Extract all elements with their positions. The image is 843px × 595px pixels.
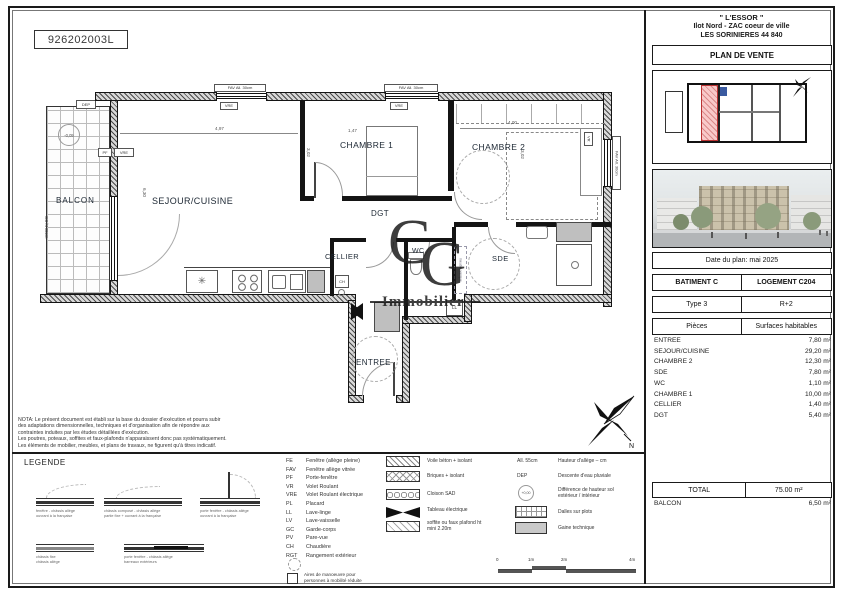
wall-segment [464,294,612,303]
symbol-label: extérieur / intérieur [558,493,600,499]
level-symbol: +0,00 [518,485,534,501]
dim-label: 3,02 [520,150,525,159]
material-swatch-soffit [386,521,420,532]
material-label: Voile béton + isolant [427,458,472,464]
washbasin [526,226,548,239]
key-plan-building [687,83,807,143]
sink [268,270,306,293]
nota-line: Les éléments de mobilier, meubles, et pl… [18,443,227,449]
project-address-1: Ilot Nord - ZAC coeur de ville [650,23,833,30]
material-swatch-concrete [386,456,420,467]
wall-segment [266,92,386,101]
total-row: TOTAL 75.00 m² [652,482,832,498]
plan-date: Date du plan: mai 2025 [652,252,832,269]
utility-duct [556,222,592,242]
legend-glyph: porte fenêtre - châssis allègebarreaux e… [124,544,214,570]
wall-segment [438,92,612,101]
watermark-subtitle: Immobilier [382,294,465,311]
vre-label: VRE [114,148,134,157]
table-row: DGT5,40 m² [654,412,831,419]
pmr-legend-circle [288,558,301,571]
watermark-logo: C G Immobilier [370,210,485,315]
material-swatch-brick [386,471,420,482]
window-symbol [386,93,438,99]
wall-segment [40,294,356,303]
table-row: ENTREE7,80 m² [654,337,831,344]
north-arrow-icon: N [584,394,640,450]
shower-tray [556,244,592,286]
reference-number: 926202003L [34,30,128,49]
material-swatch-sad [386,489,420,500]
building-render [652,169,832,248]
partition [300,196,314,201]
key-plan-north-icon [791,76,813,98]
legend-glyph: fenêtre - châssis allègeouvrant à la fra… [36,484,98,520]
wall-segment [603,92,612,140]
legend-divider [12,452,644,454]
wall-segment [348,395,364,403]
level-marker: -0,05 [58,124,80,146]
dim-label: 4,97 [215,126,224,131]
table-row: CELLIER1,40 m² [654,401,831,408]
partition [448,101,454,191]
dim-label: 6,30 [142,188,147,197]
room-label-balcon: BALCON [56,196,95,205]
guardrail-note: GC ht 80cm [44,216,49,238]
boiler-label: CH [335,275,349,288]
key-plan [652,70,832,164]
dim-label: 1,47 [348,128,357,133]
table-row: SEJOUR/CUISINE29,20 m² [654,348,831,355]
legend-glyph: châssis composé - châssis allègepartie f… [104,484,194,520]
col-pieces: Pièces [653,319,742,334]
pf-label: PF [98,148,112,157]
symbol-label: Hauteur d'allège – cm [558,458,606,464]
material-label: Briques + isolant [427,473,464,479]
building-row: BATIMENT C LOGEMENT C204 [652,274,832,291]
doc-title: PLAN DE VENTE [652,45,832,65]
dim-label: 4,00 [508,120,517,125]
room-label-entree: ENTREE [356,358,391,367]
kitchen-unit: ✳ [186,270,218,293]
symbol-label: Dalles sur plots [558,509,592,515]
partition [330,238,366,242]
pmr-legend-square [287,573,298,584]
pmr-caption: Aires de manoeuvre pour [304,572,356,577]
balcony-label: BALCON [654,500,681,507]
window-symbol [604,140,611,186]
render-tree [673,214,689,230]
boiler-symbol [338,289,345,296]
balcony-value: 6,50 m² [809,500,831,507]
legend-title: LEGENDE [24,458,66,467]
project-name: " L'ESSOR " [650,13,833,22]
dim-label: 3,02 [306,148,311,157]
bed [366,126,418,196]
dep-label: DEP [76,100,96,109]
room-label-sejour: SEJOUR/CUISINE [152,196,233,206]
watermark-letter-g: G [420,232,466,296]
utility-duct [307,270,325,293]
render-road [653,233,832,248]
hob [232,270,262,293]
type-row: Type 3 R+2 [652,296,832,313]
pmr-caption: personnes à mobilité réduite [304,578,362,583]
render-tree [755,203,781,229]
key-plan-unit-highlight [701,85,718,141]
wall-segment [402,316,472,324]
legend-glyph: porte fenêtre - châssis allègeouvrant à … [200,472,270,520]
table-row: WC1,10 m² [654,380,831,387]
electrical-panel [351,303,363,320]
fav-label: FAV All. 30cm [214,84,266,92]
duct-swatch [515,522,547,534]
watermark-line [370,301,480,303]
type-value: Type 3 [653,297,742,312]
batiment-value: BATIMENT C [653,275,742,290]
material-label: mini 2.20m [427,526,451,532]
partition [300,101,305,200]
french-door-symbol [111,197,118,280]
table-row: SDE7,80 m² [654,369,831,376]
partition [330,238,334,296]
wardrobe [456,104,604,124]
total-value: 75.00 m² [746,483,831,497]
fav-label: FAV All. 30cm [384,84,438,92]
nota-line: Les poutres, poteaux, soffites et faux-p… [18,436,227,442]
pmr-circle [456,150,510,204]
room-label-chambre1: CHAMBRE 1 [340,140,393,150]
vr-label: VR [584,132,593,146]
material-label: Tableau électrique [427,507,468,513]
dim-line [460,128,598,129]
project-address-2: LES SORINIERES 44 840 [650,32,833,39]
render-tree [803,212,821,230]
vre-label: VRE [220,102,238,110]
wall-segment [603,186,612,307]
nota-text: NOTA: Le présent document est établi sur… [18,417,227,449]
symbol-code: DEP [517,473,527,479]
surface-table-header: Pièces Surfaces habitables [652,318,832,335]
material-swatch-electrical [386,505,420,516]
dim-line [120,133,298,134]
material-label: Cloison SAD [427,491,455,497]
room-label-sde: SDE [492,254,509,263]
room-label-cellier: CELLIER [325,252,359,261]
balcony-row: BALCON 6,50 m² [654,500,831,507]
table-row: CHAMBRE 110,00 m² [654,391,831,398]
pedestal-slab-swatch [515,506,547,518]
nota-line: des adaptations dimensionnelles, techniq… [18,423,227,429]
fav-label-vertical: FAV All. 30cm [612,136,621,190]
symbol-code: All. 55cm [517,458,538,464]
render-tree [691,206,713,228]
vre-label: VRE [390,102,408,110]
bed-fold-line [366,176,418,177]
panel-divider [644,10,646,584]
key-plan-annex [665,91,683,133]
floor-value: R+2 [742,297,832,312]
room-label-chambre2: CHAMBRE 2 [472,142,525,152]
total-label: TOTAL [653,483,746,497]
symbol-label: Descente d'eau pluviale [558,473,611,479]
table-row: CHAMBRE 212,30 m² [654,358,831,365]
symbol-label: Gaine technique [558,525,594,531]
logement-value: LOGEMENT C204 [742,275,832,290]
legend-glyph: châssis fixechâssis allège [36,544,98,570]
col-surfaces: Surfaces habitables [742,319,832,334]
window-symbol [217,93,266,99]
partition [342,196,452,201]
counter-line [184,267,330,268]
north-letter: N [629,443,634,450]
plan-sheet: 926202003L DEP -0,05 GC ht 80cm BALCON F… [0,0,843,595]
wall-segment [402,320,410,403]
